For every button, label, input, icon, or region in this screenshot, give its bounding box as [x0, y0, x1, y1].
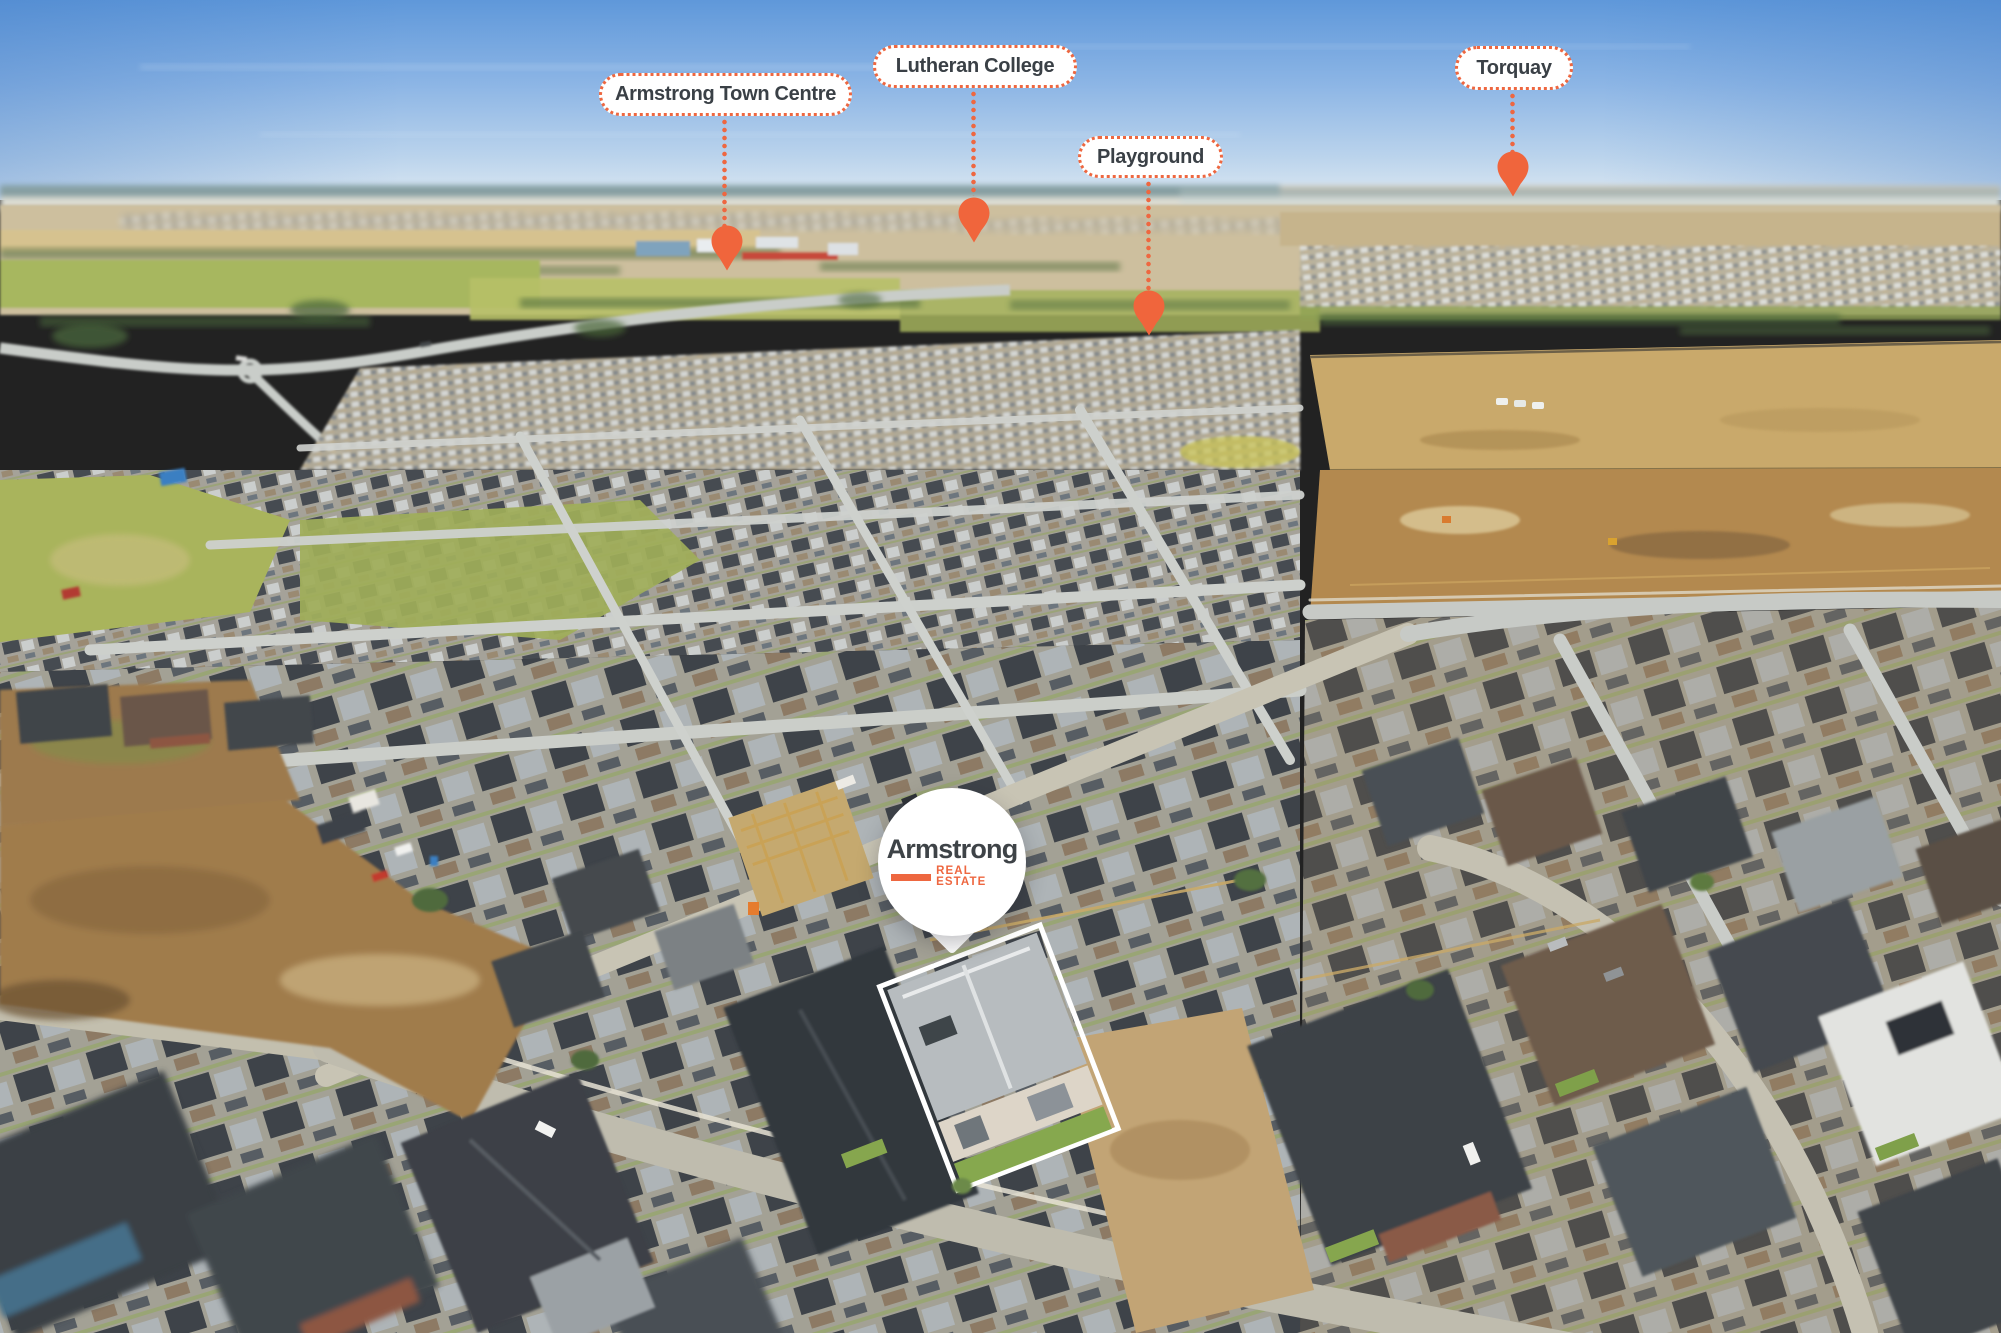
aerial-photo: Armstrong Town Centre Lutheran College P…: [0, 0, 2001, 1333]
marker-balloon: Armstrong REAL ESTATE: [878, 788, 1026, 936]
background-photo: [0, 0, 2001, 1333]
sky: [0, 0, 2001, 200]
property-marker-pin: Armstrong REAL ESTATE: [878, 788, 1026, 960]
logo-bar: [891, 874, 931, 881]
brand-tagline-row: REAL ESTATE: [891, 866, 1013, 889]
paddock: [1310, 340, 2001, 614]
brand-tagline: REAL ESTATE: [936, 866, 1013, 889]
brand-name: Armstrong: [887, 836, 1018, 863]
